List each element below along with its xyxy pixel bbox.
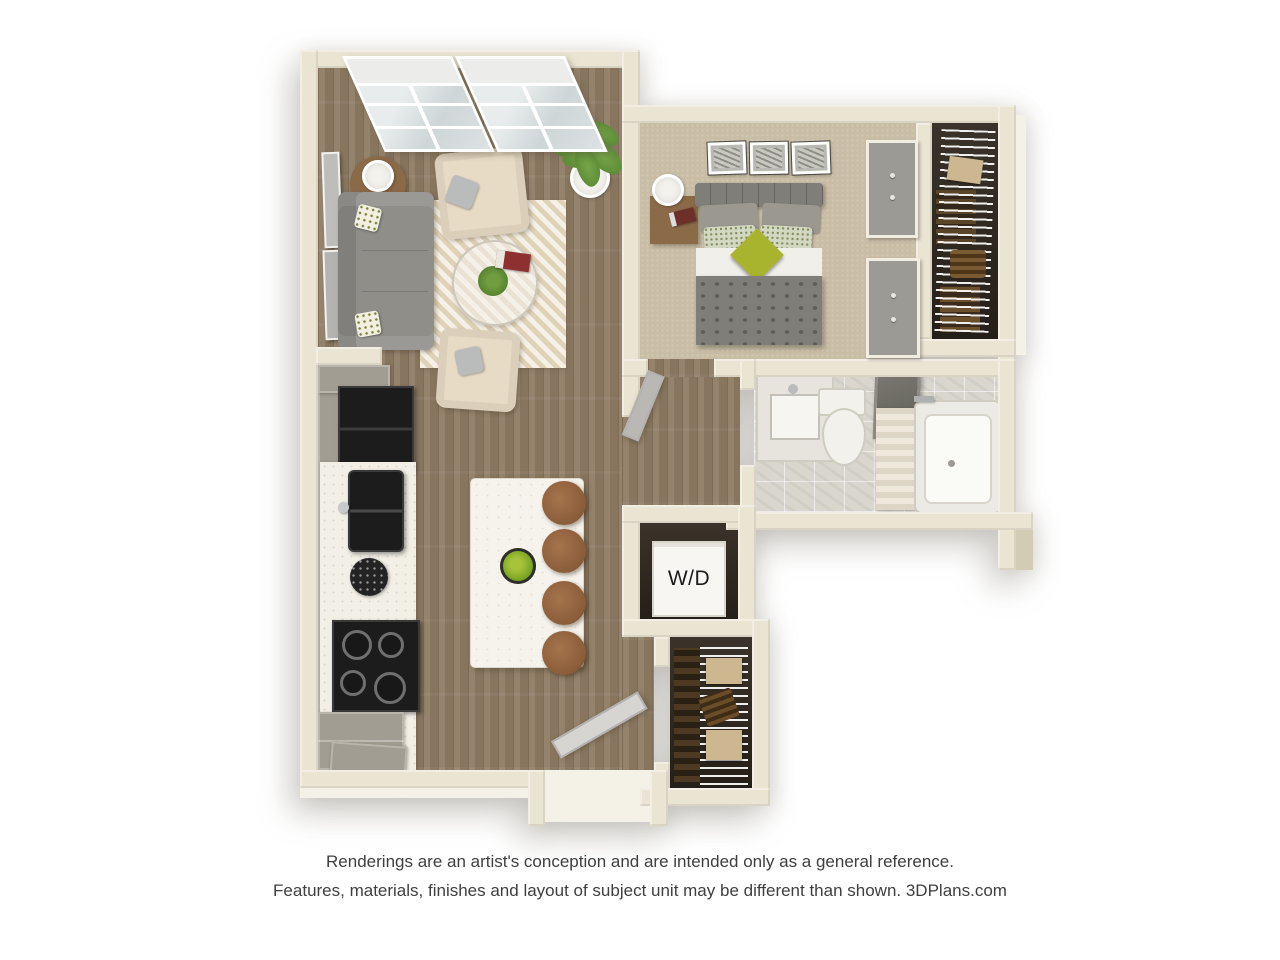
- wall: [740, 359, 756, 390]
- disclaimer-line-2: Features, materials, finishes and layout…: [0, 881, 1280, 901]
- window-shade: [459, 59, 575, 86]
- window-shade: [346, 59, 462, 86]
- accent-chair-pillow: [454, 346, 485, 377]
- bathtub: [914, 400, 1002, 514]
- burner: [378, 632, 404, 658]
- coat-closet-clothes: [674, 648, 700, 782]
- vanity-sink: [770, 394, 820, 440]
- bed-blanket: [696, 276, 822, 345]
- washer-dryer-unit: W/D: [652, 541, 726, 617]
- bar-stool: [542, 581, 586, 625]
- wall: [654, 637, 670, 667]
- wall-corner-face: [1016, 530, 1033, 570]
- table-lamp: [362, 160, 394, 192]
- picture-frame: [750, 142, 789, 175]
- wall: [622, 619, 756, 637]
- closet-storage-box: [946, 156, 983, 184]
- closet-dresser-unit: [866, 258, 920, 358]
- sink-faucet: [338, 502, 349, 513]
- wall: [738, 505, 756, 637]
- wall-outer-face: [300, 788, 531, 798]
- picture-frame: [707, 141, 746, 174]
- coat-closet-box: [706, 730, 742, 760]
- coffee-table-plant: [478, 266, 508, 296]
- throw-pillow: [354, 310, 382, 338]
- wall: [916, 339, 1016, 357]
- refrigerator: [338, 386, 414, 472]
- shower-tile-ledge: [876, 408, 916, 510]
- bar-stool: [542, 481, 586, 525]
- entry-wall-stub: [528, 770, 545, 826]
- page-background: { "labels": { "washer_dryer": "W/D" }, "…: [0, 0, 1280, 960]
- bar-stool: [542, 631, 586, 675]
- picture-frame: [791, 141, 830, 174]
- wall: [998, 359, 1016, 570]
- wall: [622, 105, 1016, 123]
- wall: [316, 347, 382, 365]
- floor-plan: W/D: [250, 40, 1050, 840]
- dish-rack: [350, 558, 388, 596]
- washer-dryer-label: W/D: [668, 567, 710, 591]
- burner: [342, 630, 372, 660]
- kitchen-sink: [348, 470, 404, 552]
- bar-stool: [542, 529, 586, 573]
- bed-headboard: [695, 183, 823, 207]
- wall: [622, 359, 648, 377]
- island-fruit-bowl: [500, 548, 536, 584]
- vanity-faucet: [788, 384, 798, 394]
- coat-closet-box: [706, 658, 742, 684]
- sofa: [338, 192, 434, 350]
- wall: [714, 359, 1016, 377]
- stove-cooktop: [332, 620, 420, 712]
- bedside-lamp: [652, 174, 684, 206]
- closet-basket: [950, 250, 986, 278]
- wall: [726, 512, 1033, 530]
- disclaimer-line-1: Renderings are an artist's conception an…: [0, 852, 1280, 872]
- wall-outer-face: [1016, 115, 1026, 355]
- entry-wall-stub: [650, 770, 668, 826]
- burner: [374, 672, 406, 704]
- bathtub-drain: [948, 460, 955, 467]
- wall: [752, 619, 770, 806]
- bathtub-basin: [924, 414, 992, 504]
- wall: [300, 50, 318, 788]
- burner: [340, 670, 366, 696]
- shower-head: [914, 396, 934, 402]
- wall: [622, 505, 640, 637]
- wall: [300, 770, 531, 788]
- closet-dresser-unit: [866, 140, 918, 238]
- wall: [622, 505, 756, 523]
